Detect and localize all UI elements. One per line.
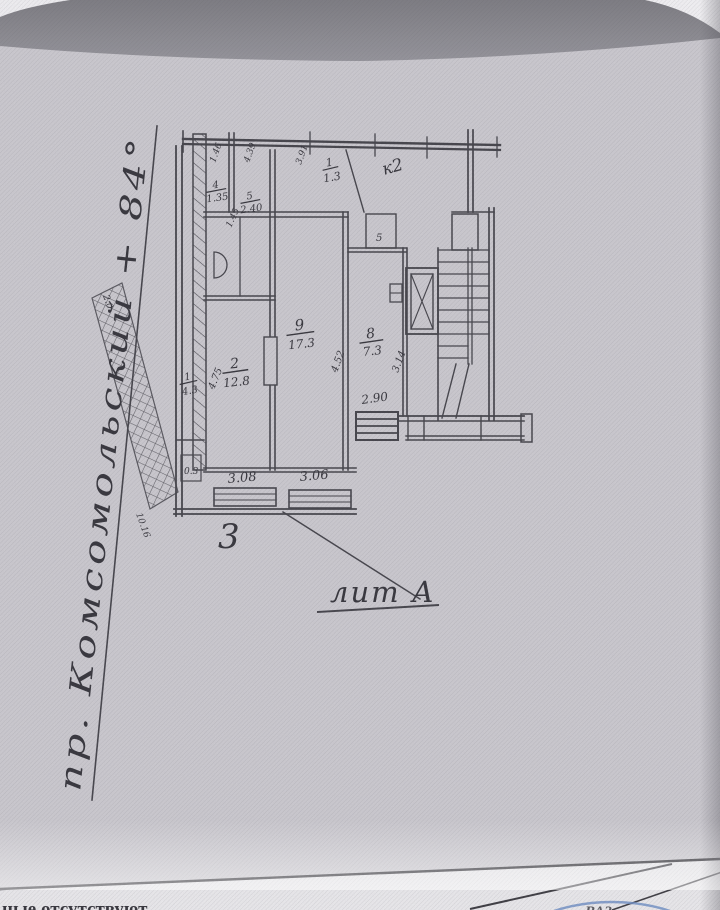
grain-overlay xyxy=(0,0,720,910)
right-edge-shadow xyxy=(700,0,720,910)
scanned-floorplan-photo: пр. Комсомольский + 84° 1.46 4.39 3.91 к… xyxy=(0,0,720,910)
floorplan-canvas: пр. Комсомольский + 84° 1.46 4.39 3.91 к… xyxy=(0,0,720,910)
bottom-sheen xyxy=(0,820,720,890)
